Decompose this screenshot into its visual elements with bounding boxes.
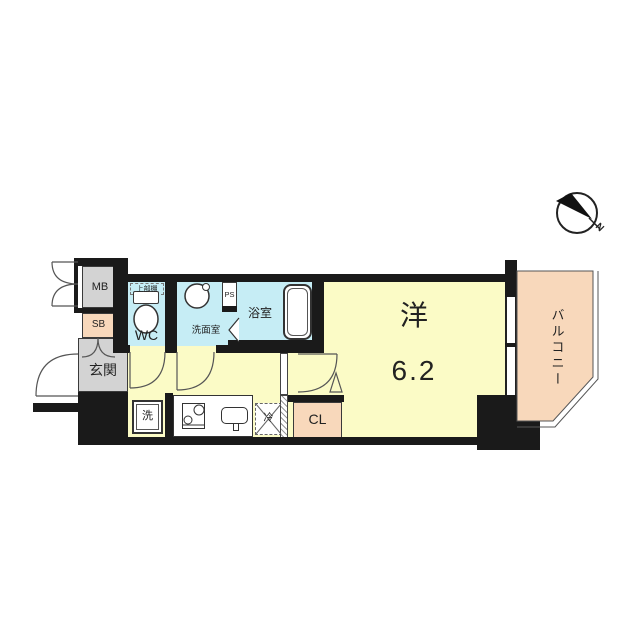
kitchen-sink-icon — [221, 407, 248, 424]
wall-closet-top — [288, 395, 344, 402]
pipe-space-label: PS — [225, 285, 234, 305]
washer-label: 洗 — [132, 409, 163, 423]
compass-needle — [556, 193, 592, 219]
compass-north-label: N — [591, 220, 608, 237]
wall-left-mb — [74, 258, 78, 313]
partition-wall — [280, 353, 288, 395]
fridge-label: 冷 — [255, 412, 282, 425]
wall-wc-washroom — [165, 282, 177, 353]
wall-right-column — [477, 395, 540, 450]
entrance-label: 玄関 — [78, 361, 128, 379]
stove-icon — [182, 403, 205, 429]
wc-label: WC — [128, 327, 165, 343]
wall-window-divider — [505, 343, 517, 347]
shoe-box-label: SB — [82, 317, 115, 333]
wall-left-bar — [33, 403, 78, 412]
closet-label: CL — [293, 410, 342, 428]
window-lower — [505, 347, 517, 395]
wall-entrance-mass — [78, 392, 128, 445]
wall-mb-sb — [78, 308, 118, 313]
wall-right-stub — [505, 260, 517, 297]
wall-entry-column — [113, 258, 128, 348]
window-upper — [505, 297, 517, 343]
wall-kitchen-stub — [165, 393, 173, 437]
wall-stub-mid — [216, 345, 228, 353]
upper-shelf-label: 上部棚 — [130, 284, 164, 294]
wall-bath-bottom — [228, 340, 324, 353]
wall-stub-left — [113, 345, 130, 353]
wall-under-ps — [222, 306, 237, 312]
main-room-label: 洋 — [364, 300, 464, 332]
bathroom-label: 浴室 — [238, 305, 282, 320]
floorplan: MB SB 玄関 WC 上部棚 洗面室 PS 浴室 洗 冷 CL 洋 6.2 バ… — [0, 0, 640, 640]
kitchen-sink-tab — [233, 423, 239, 431]
bathtub-icon — [283, 284, 312, 340]
main-room-size: 6.2 — [364, 355, 464, 387]
entrance-door-swing — [36, 354, 78, 396]
meter-box-label: MB — [82, 279, 118, 295]
washroom-label: 洗面室 — [178, 324, 234, 337]
wall-bath-right — [312, 274, 324, 340]
balcony-label: バルコニー — [548, 288, 566, 408]
wall-bottom — [128, 437, 517, 445]
